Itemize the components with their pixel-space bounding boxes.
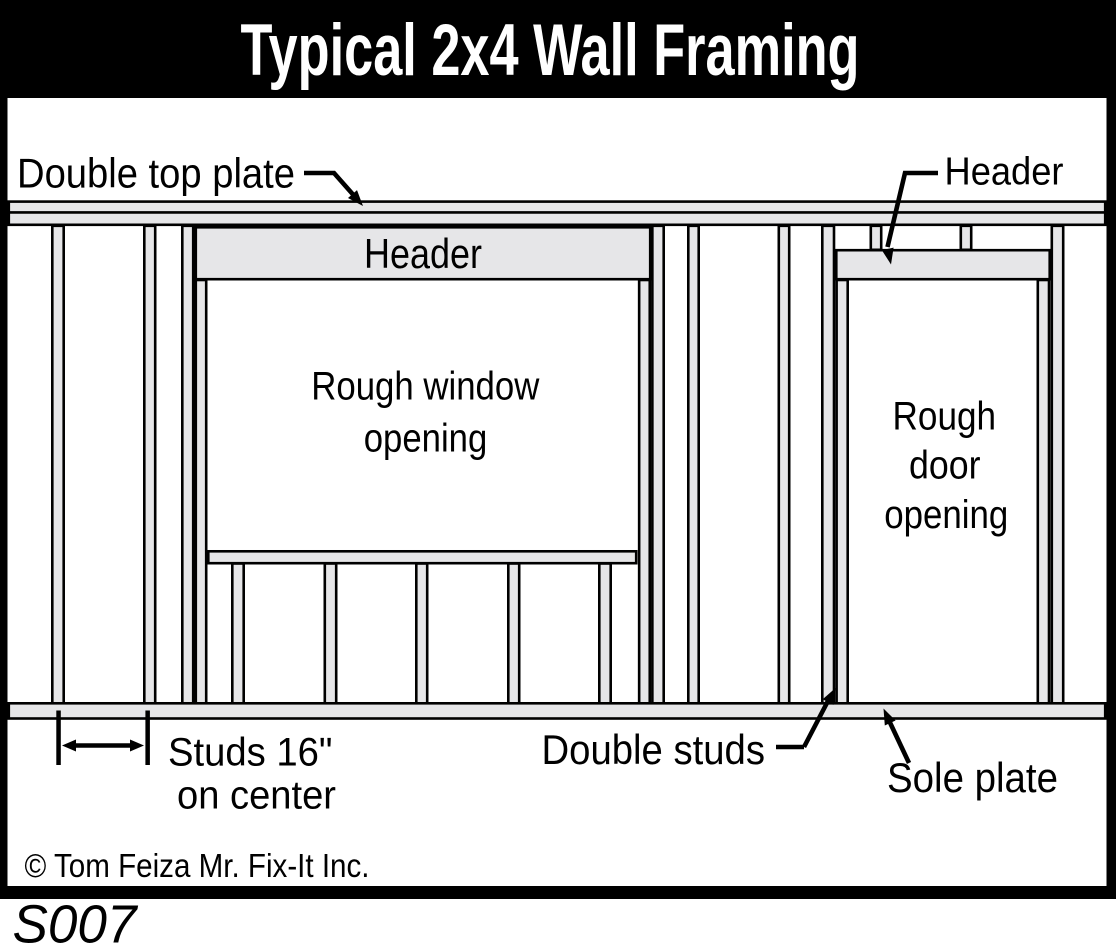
svg-text:opening: opening [364,417,488,461]
svg-text:Rough: Rough [893,395,997,439]
svg-text:door: door [909,444,981,488]
svg-text:Typical 2x4 Wall Framing: Typical 2x4 Wall Framing [241,10,860,91]
svg-text:Double top plate: Double top plate [17,150,295,197]
svg-text:Sole plate: Sole plate [887,754,1058,801]
svg-text:© Tom Feiza Mr. Fix-It Inc.: © Tom Feiza Mr. Fix-It Inc. [25,847,370,884]
svg-text:opening: opening [884,493,1008,537]
svg-text:Rough window: Rough window [311,365,539,409]
svg-text:Header: Header [945,151,1064,194]
svg-text:on center: on center [177,774,336,818]
svg-text:Studs 16": Studs 16" [168,731,333,775]
svg-text:Header: Header [364,230,482,277]
svg-text:Double studs: Double studs [542,726,766,773]
svg-text:S007: S007 [13,895,139,944]
